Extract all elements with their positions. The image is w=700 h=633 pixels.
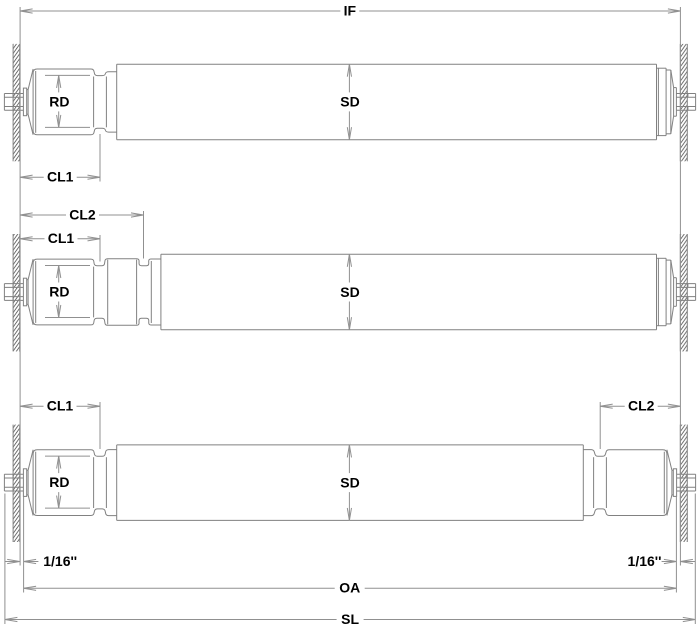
svg-text:SL: SL: [341, 611, 359, 627]
svg-text:IF: IF: [344, 2, 357, 18]
svg-text:CL1: CL1: [47, 398, 74, 414]
svg-text:SD: SD: [340, 94, 359, 110]
svg-text:SD: SD: [340, 284, 359, 300]
svg-text:SD: SD: [340, 474, 359, 490]
svg-text:RD: RD: [49, 284, 69, 300]
svg-text:1/16'': 1/16'': [628, 553, 662, 569]
svg-text:1/16'': 1/16'': [43, 553, 77, 569]
svg-text:CL2: CL2: [628, 398, 655, 414]
svg-text:CL1: CL1: [47, 169, 74, 185]
svg-text:CL1: CL1: [48, 230, 75, 246]
svg-text:CL2: CL2: [69, 206, 96, 222]
svg-text:RD: RD: [49, 94, 69, 110]
svg-text:OA: OA: [339, 580, 360, 596]
svg-text:RD: RD: [49, 474, 69, 490]
